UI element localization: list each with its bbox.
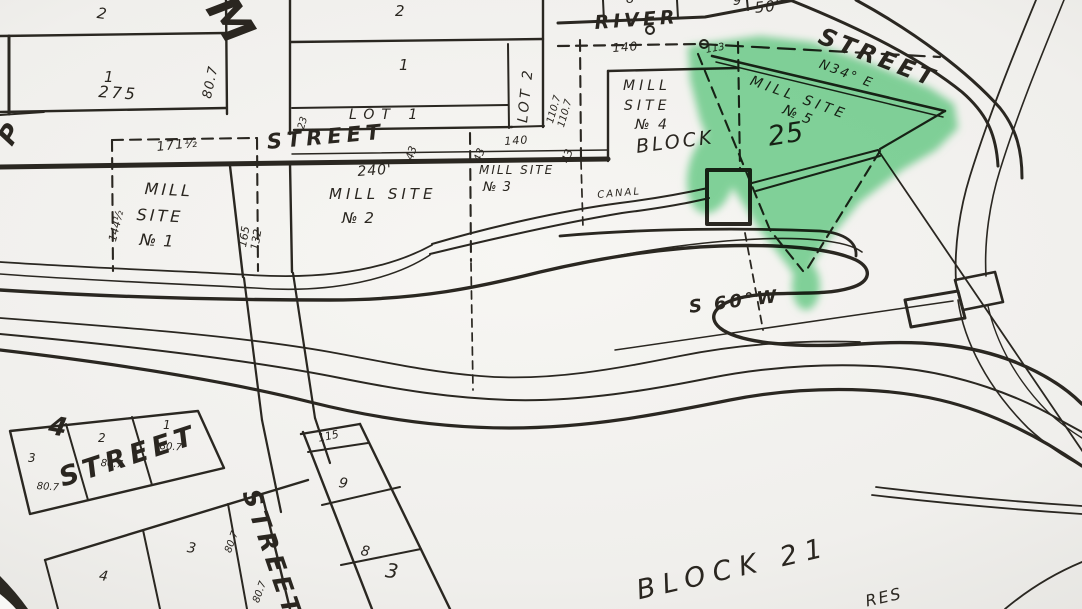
- lot-number: 2: [395, 4, 405, 19]
- dim-50: 50': [754, 0, 782, 16]
- lot-number: 9: [733, 0, 741, 8]
- lot-number: 4: [98, 569, 109, 584]
- mill-site-1-label: SITE: [136, 207, 184, 225]
- dim-275: 275: [98, 84, 139, 103]
- mill-site-4-label: № 4: [635, 118, 669, 132]
- mill-site-2-label: MILL SITE: [329, 187, 436, 202]
- dim-140: 140: [504, 134, 529, 147]
- mill-site-4-label: MILL: [623, 79, 671, 93]
- lot-number: 2: [98, 432, 106, 444]
- mill-site-3-label: № 3: [483, 181, 512, 194]
- lot-1-label: LOT 1: [349, 108, 424, 122]
- mill-site-3-label: MILL SITE: [479, 164, 554, 176]
- mill-site-1-label: MILL: [144, 181, 193, 200]
- block-25-number: 25: [766, 118, 806, 150]
- lot-number: 1: [399, 58, 409, 73]
- lot-number: 8: [626, 0, 634, 6]
- lot-number: 3: [28, 452, 36, 464]
- dim-240: 240': [357, 163, 392, 179]
- mill-site-1-label: № 1: [139, 232, 175, 250]
- lot-number: 3: [186, 541, 197, 556]
- map-linework: [0, 0, 1082, 609]
- mill-site-2-label: № 2: [342, 211, 375, 226]
- dim-132: 132: [249, 228, 263, 251]
- dim-140: 140: [612, 40, 639, 54]
- dim-80-7: 80.7: [36, 482, 59, 494]
- plat-map: MP2127580.7171½STREET2123LOT 143LOT 2431…: [0, 0, 1082, 609]
- mill-site-4-label: SITE: [624, 99, 670, 113]
